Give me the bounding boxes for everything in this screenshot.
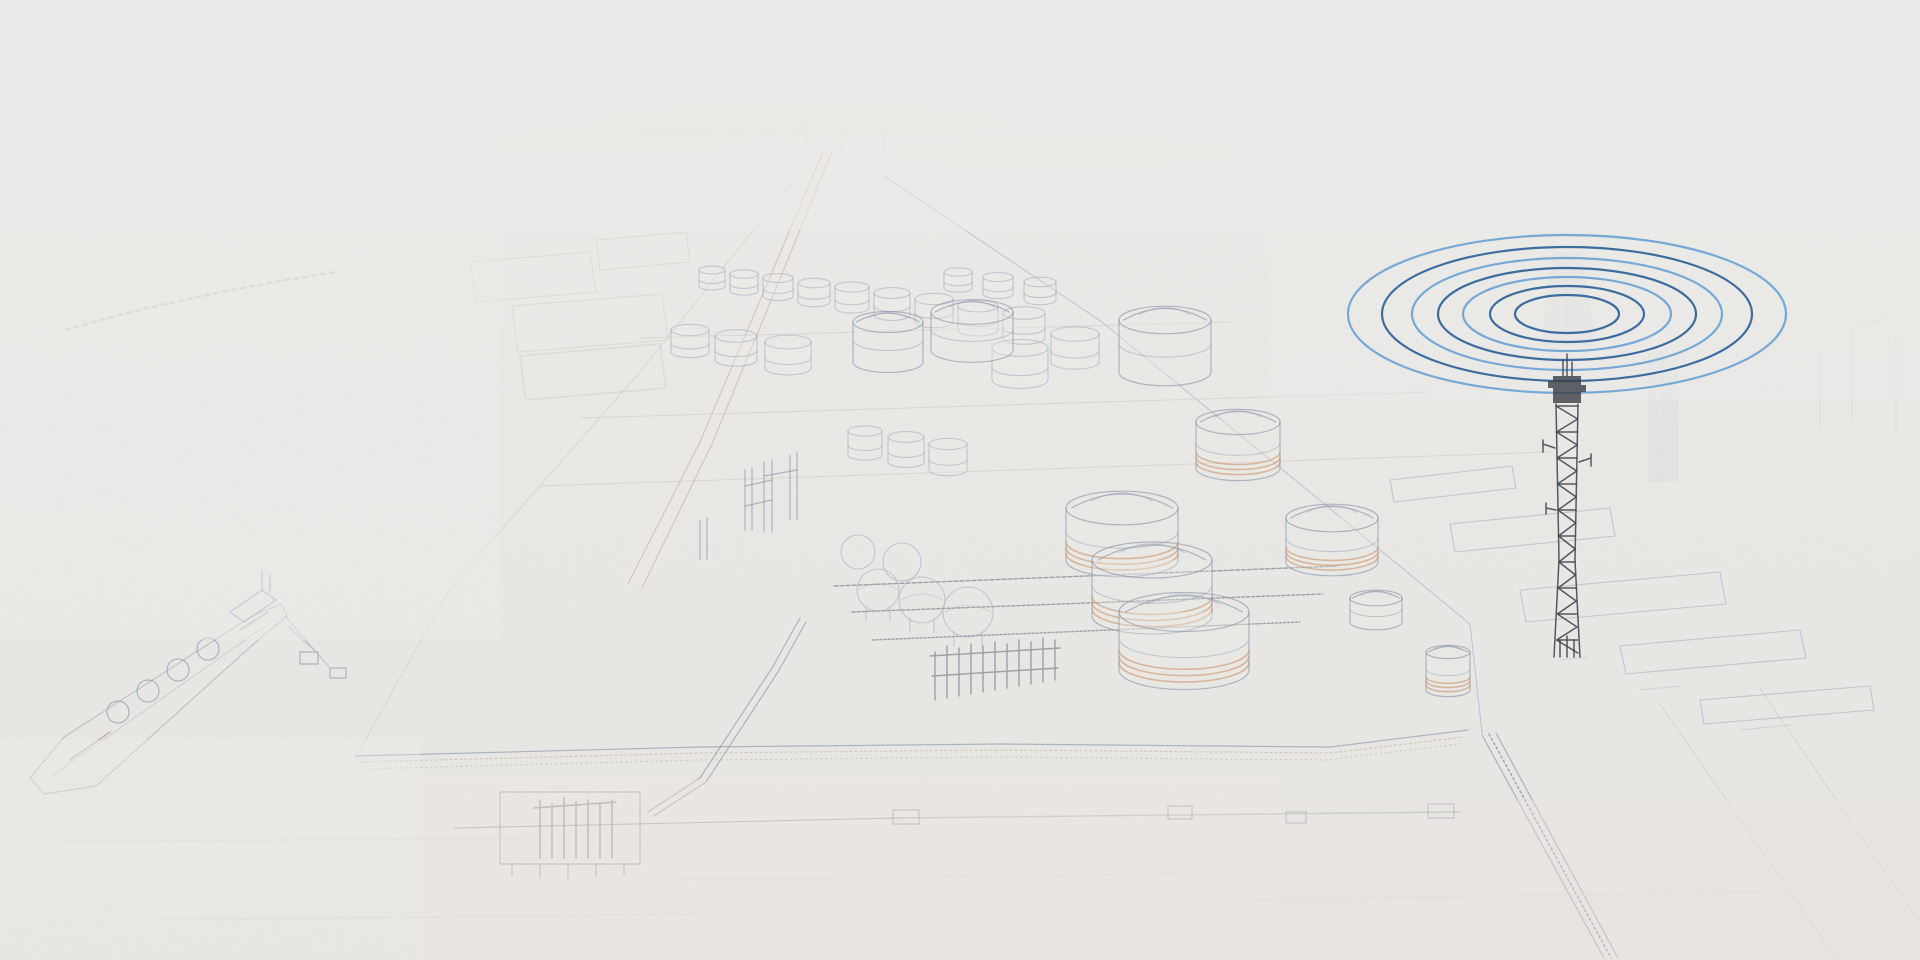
paper-grain-texture (0, 0, 1920, 960)
sketch-canvas: Faint pencil-sketch aerial view of a coa… (0, 0, 1920, 960)
lng-terminal-sketch-image: Faint pencil-sketch aerial view of a coa… (0, 0, 1920, 960)
